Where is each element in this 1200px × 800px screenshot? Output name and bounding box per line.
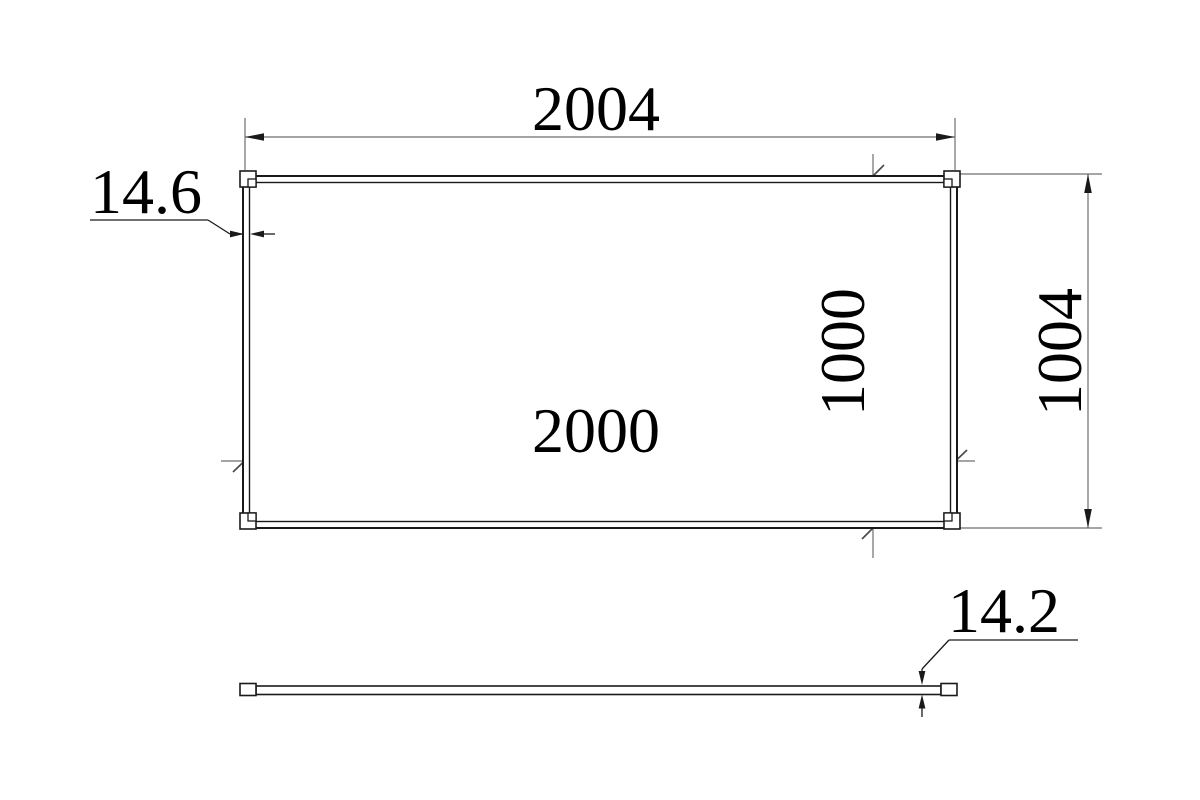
panel-thickness-value: 14.2 [948, 575, 1060, 646]
corner-step-bottom-right [944, 513, 952, 521]
corner-step-top-right [944, 179, 952, 187]
overall-height-value: 1004 [1024, 288, 1095, 416]
corner-step-top-left [248, 179, 256, 187]
side-view [240, 684, 957, 696]
drawing-canvas: 2004 2000 14.6 1000 1004 14.2 [0, 0, 1200, 800]
technical-drawing: 2004 2000 14.6 1000 1004 14.2 [0, 0, 1200, 800]
overall-width-value: 2004 [532, 73, 660, 144]
corner-step-bottom-left [248, 513, 256, 521]
panel-profile-cap-left [240, 684, 256, 696]
panel-profile-body [256, 686, 941, 695]
frame-thickness-value: 14.6 [90, 156, 202, 227]
inner-height-value: 1000 [807, 288, 878, 416]
panel-profile-cap-right [941, 684, 957, 696]
inner-width-value: 2000 [532, 395, 660, 466]
